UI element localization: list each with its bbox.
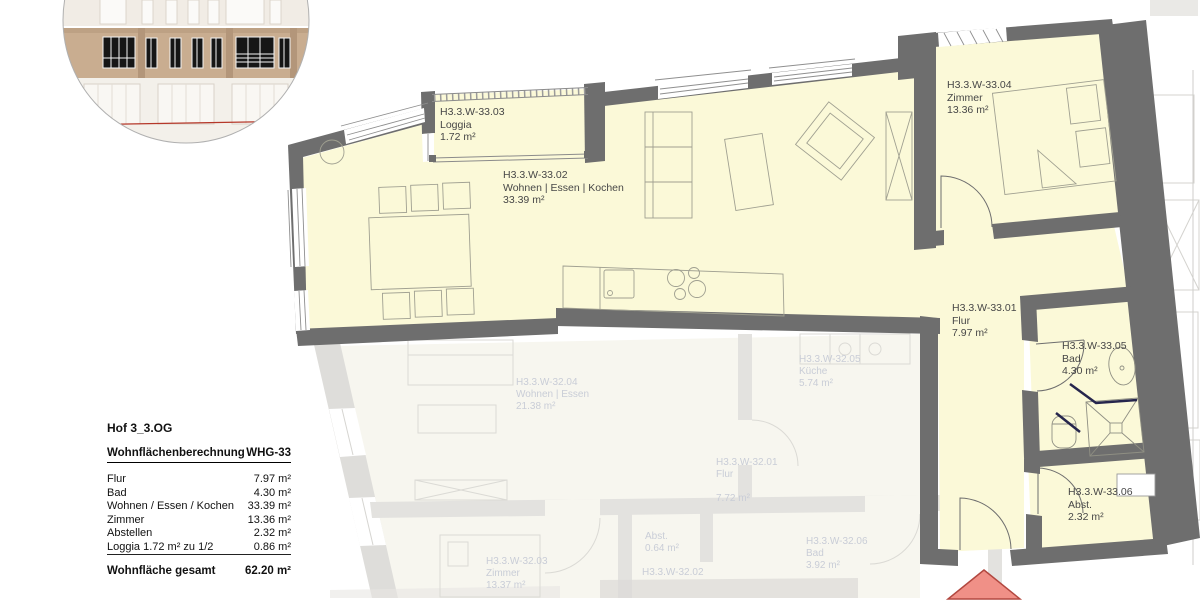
facade-windows	[103, 37, 290, 68]
unit-label: WHG-33	[246, 447, 291, 459]
room-label-loggia: H3.3.W-33.03 Loggia 1.72 m²	[440, 106, 505, 144]
floorplan-page: H3.3.W-33.03 Loggia 1.72 m² H3.3.W-33.02…	[0, 0, 1200, 600]
room-label-bad: H3.3.W-33.05 Bad 4.30 m²	[1062, 340, 1127, 378]
room-name: Loggia	[440, 119, 505, 132]
room-area: 33.39 m²	[503, 194, 624, 207]
area-row: Flur 7.97 m²	[107, 473, 291, 487]
room-label-zimmer: H3.3.W-33.04 Zimmer 13.36 m²	[947, 79, 1012, 117]
area-row: Zimmer 13.36 m²	[107, 514, 291, 528]
room-id: H3.3.W-33.01	[952, 302, 1017, 315]
room-id: H3.3.W-33.05	[1062, 340, 1127, 353]
room-area: 2.32 m²	[1068, 511, 1133, 524]
area-row: Abstellen 2.32 m²	[107, 527, 291, 541]
area-row-loggia: Loggia 1.72 m² zu 1/2 0.86 m²	[107, 541, 291, 556]
faded-room-label: H3.3.W-32.03 Zimmer 13.37 m²	[486, 556, 548, 592]
room-label-abst: H3.3.W-33.06 Abst. 2.32 m²	[1068, 486, 1133, 524]
faded-room-label: H3.3.W-32.05 Küche 5.74 m²	[799, 354, 861, 390]
room-label-wohnen: H3.3.W-33.02 Wohnen | Essen | Kochen 33.…	[503, 169, 624, 207]
entrance-arrow	[948, 570, 1020, 599]
room-name: Abst.	[1068, 499, 1133, 512]
room-area: 13.36 m²	[947, 104, 1012, 117]
room-id: H3.3.W-33.03	[440, 106, 505, 119]
room-name: Flur	[952, 315, 1017, 328]
faded-room-label: H3.3.W-32.01 Flur 7.72 m²	[716, 457, 778, 505]
area-row: Bad 4.30 m²	[107, 487, 291, 501]
room-area: 4.30 m²	[1062, 365, 1127, 378]
zimmer-floor	[934, 32, 1121, 243]
faded-room-label: H3.3.W-32.06 Bad 3.92 m²	[806, 536, 868, 572]
table-heading: Wohnflächenberechnung WHG-33	[107, 447, 291, 463]
room-area: 1.72 m²	[440, 131, 505, 144]
room-id: H3.3.W-33.02	[503, 169, 624, 182]
project-title: Hof 3_3.OG	[107, 421, 291, 435]
faded-room-label: H3.3.W-32.04 Wohnen | Essen 21.38 m²	[516, 377, 589, 413]
room-label-flur: H3.3.W-33.01 Flur 7.97 m²	[952, 302, 1017, 340]
faded-room-label: H3.3.W-32.02	[642, 567, 704, 579]
area-calculation-table: Hof 3_3.OG Wohnflächenberechnung WHG-33 …	[107, 421, 291, 577]
facade-highlight-band	[63, 28, 312, 78]
faded-room-label: Abst. 0.64 m²	[645, 531, 679, 555]
room-name: Wohnen | Essen | Kochen	[503, 182, 624, 195]
area-total-row: Wohnfläche gesamt 62.20 m²	[107, 565, 291, 577]
room-area: 7.97 m²	[952, 327, 1017, 340]
room-name: Zimmer	[947, 92, 1012, 105]
room-id: H3.3.W-33.06	[1068, 486, 1133, 499]
area-row: Wohnen / Essen / Kochen 33.39 m²	[107, 500, 291, 514]
heading-label: Wohnflächenberechnung	[107, 447, 245, 459]
facade-inset	[60, 0, 312, 147]
room-id: H3.3.W-33.04	[947, 79, 1012, 92]
room-name: Bad	[1062, 353, 1127, 366]
